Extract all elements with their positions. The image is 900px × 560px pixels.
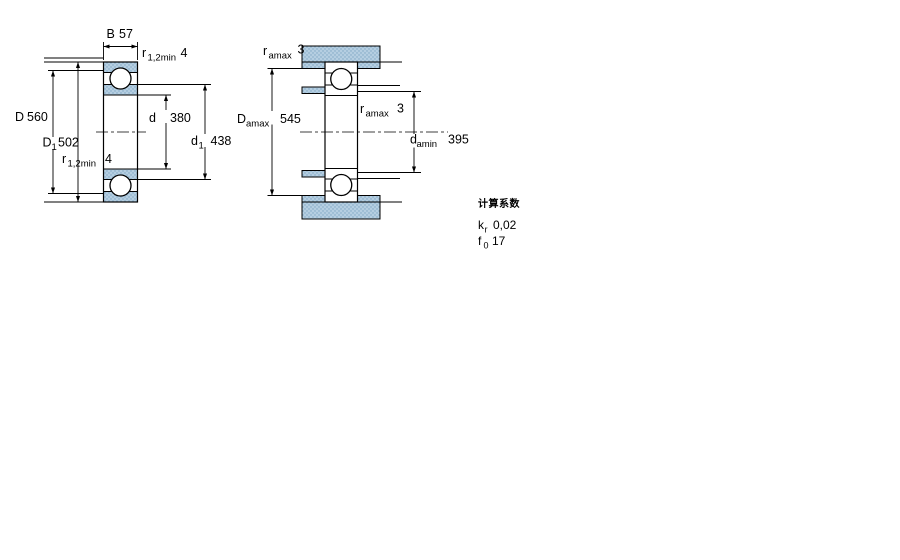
- calculation-factors: 计算系数 k r 0,02 f 0 17: [478, 197, 520, 251]
- fillet-mid-label-value: 3: [397, 102, 404, 116]
- f0-symbol: f: [478, 234, 482, 248]
- width-label-value: 57: [119, 27, 133, 41]
- outer-shoulder-label-symbol: D: [43, 136, 52, 150]
- ball-top: [331, 69, 352, 90]
- left-bearing-figure: B 57 r 1,2min 4 D 560 D 1 502 r 1,2min 4…: [15, 27, 231, 202]
- bore-label-symbol: d: [149, 111, 156, 125]
- ball-bottom: [110, 175, 131, 196]
- bearing-drawing-canvas: B 57 r 1,2min 4 D 560 D 1 502 r 1,2min 4…: [0, 0, 900, 560]
- housing-shoulder-label-value: 545: [280, 112, 301, 126]
- outer-shoulder-label-value: 502: [58, 136, 79, 150]
- chamfer-bottom-label-symbol: r: [62, 152, 66, 166]
- kr-value: 0,02: [493, 218, 517, 232]
- inner-shoulder-label-symbol: d: [191, 134, 198, 148]
- outer-diameter-label-value: 560: [27, 110, 48, 124]
- outer-diameter-label-symbol: D: [15, 110, 24, 124]
- shaft-shoulder-label-subscript: amin: [417, 139, 438, 150]
- outer-shoulder-label-subscript: 1: [52, 142, 57, 153]
- inner-shoulder-label-subscript: 1: [199, 141, 204, 152]
- technical-drawing: B 57 r 1,2min 4 D 560 D 1 502 r 1,2min 4…: [0, 0, 900, 560]
- fillet-top-label-value: 3: [298, 43, 305, 57]
- bore-label-value: 380: [170, 111, 191, 125]
- fillet-mid-label-subscript: amax: [366, 109, 389, 120]
- shaft-shoulder-top: [302, 87, 325, 94]
- shaft-shoulder-bottom: [302, 171, 325, 178]
- chamfer-top-label-symbol: r: [142, 46, 146, 60]
- chamfer-top-label-value: 4: [181, 46, 188, 60]
- chamfer-top-label-subscript: 1,2min: [148, 53, 177, 64]
- fillet-top-label-symbol: r: [263, 44, 267, 58]
- calculation-factors-title: 计算系数: [478, 197, 520, 210]
- kr-subscript: r: [485, 225, 488, 235]
- housing-shoulder-label-subscript: amax: [246, 119, 269, 130]
- right-abutment-figure: r amax 3 D amax 545 r amax 3 d amin 395: [235, 43, 469, 220]
- chamfer-bottom-label-value: 4: [105, 152, 112, 166]
- f0-subscript: 0: [484, 241, 489, 251]
- width-label-symbol: B: [107, 27, 115, 41]
- ball-bottom: [331, 175, 352, 196]
- ball-top: [110, 68, 131, 89]
- housing-shoulder-label-symbol: D: [237, 112, 246, 126]
- fillet-top-label-subscript: amax: [269, 51, 292, 62]
- chamfer-bottom-label-subscript: 1,2min: [68, 159, 97, 170]
- inner-shoulder-label-value: 438: [211, 134, 232, 148]
- f0-value: 17: [492, 234, 506, 248]
- fillet-mid-label-symbol: r: [360, 102, 364, 116]
- shaft-shoulder-label-value: 395: [448, 133, 469, 147]
